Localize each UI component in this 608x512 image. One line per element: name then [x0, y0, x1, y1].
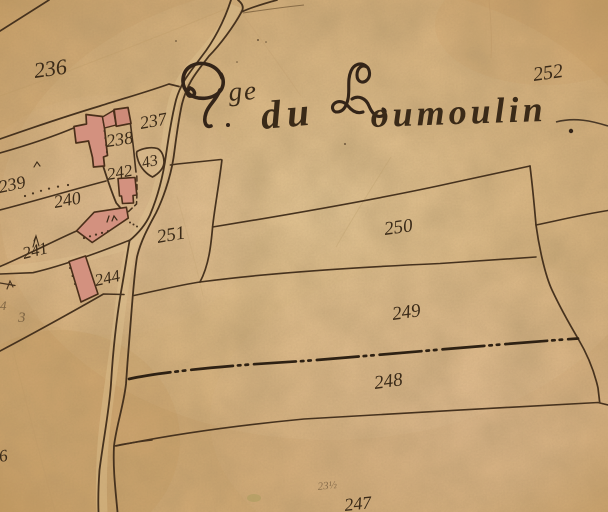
svg-text:23½: 23½ [317, 479, 337, 493]
svg-text:238: 238 [105, 127, 135, 151]
svg-text:236: 236 [32, 54, 68, 83]
svg-text:247: 247 [343, 492, 373, 512]
svg-text:248: 248 [373, 369, 405, 394]
svg-text:4: 4 [0, 298, 7, 313]
svg-text:3: 3 [17, 310, 26, 326]
svg-text:249: 249 [391, 300, 423, 325]
svg-text:252: 252 [532, 60, 565, 86]
svg-text:ge: ge [227, 75, 259, 107]
svg-text:oumoulin: oumoulin [370, 89, 547, 135]
svg-text:du: du [259, 88, 317, 138]
svg-text:250: 250 [383, 215, 415, 240]
